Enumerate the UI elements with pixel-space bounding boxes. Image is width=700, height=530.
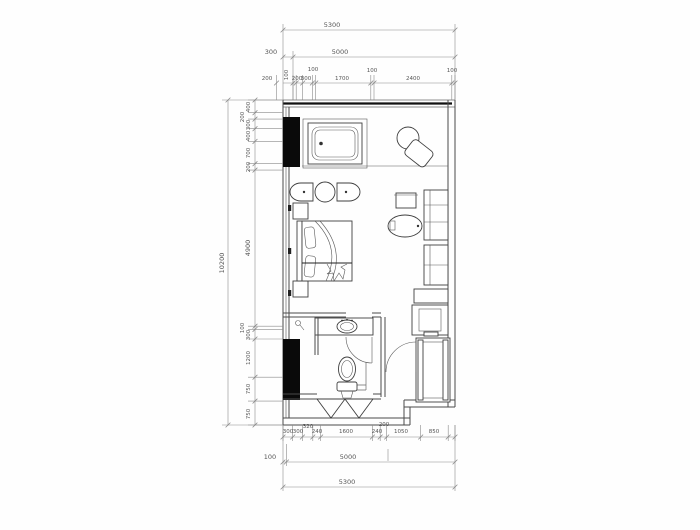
svg-text:240: 240 <box>312 429 323 435</box>
svg-text:300: 300 <box>246 329 252 340</box>
basin <box>337 320 357 333</box>
column-lower <box>283 339 300 400</box>
svg-text:300: 300 <box>301 76 312 82</box>
nightstand-bottom <box>293 281 308 297</box>
bathtub <box>303 119 367 168</box>
svg-text:200: 200 <box>379 422 390 428</box>
svg-text:4900: 4900 <box>244 240 252 257</box>
minibar <box>412 305 448 335</box>
svg-text:1600: 1600 <box>339 429 353 435</box>
svg-text:100: 100 <box>447 68 458 74</box>
dim-top-outer: 200 <box>262 76 273 82</box>
svg-text:400: 400 <box>246 101 252 112</box>
headboard <box>297 221 302 281</box>
dim-bottom-offset: 100 <box>264 453 276 461</box>
dim-left-overall: 10200 <box>218 253 226 274</box>
svg-text:100: 100 <box>284 69 290 80</box>
svg-text:1200: 1200 <box>246 351 252 365</box>
nightstand-top <box>293 203 308 219</box>
entry-door-arc <box>386 342 416 372</box>
floor-plan-page: 5300 300 5000 200 100 200 300 100 1700 1… <box>0 0 700 530</box>
svg-text:700: 700 <box>246 147 252 158</box>
toilet <box>337 357 357 398</box>
svg-text:1700: 1700 <box>335 76 349 82</box>
bathroom <box>283 313 416 418</box>
double-door-left <box>317 399 345 418</box>
svg-text:400: 400 <box>246 130 252 141</box>
shower-head <box>296 321 301 326</box>
svg-text:1050: 1050 <box>394 429 408 435</box>
svg-text:100: 100 <box>367 68 378 74</box>
svg-text:2400: 2400 <box>406 76 420 82</box>
dim-top-overall: 5300 <box>324 21 341 29</box>
dim-top-inner: 5000 <box>332 48 349 56</box>
vanity-stool <box>315 182 335 202</box>
lounge-table-and-chair <box>397 127 435 168</box>
column-upper <box>283 117 300 167</box>
svg-text:300: 300 <box>246 119 252 130</box>
svg-text:240: 240 <box>372 429 383 435</box>
svg-text:100: 100 <box>308 67 319 73</box>
floor-plan-drawing: 5300 300 5000 200 100 200 300 100 1700 1… <box>0 0 700 530</box>
dim-bottom-inner: 5000 <box>340 453 357 461</box>
dim-top-offset: 300 <box>265 48 277 56</box>
vanity-double-sinks <box>290 182 360 202</box>
svg-text:750: 750 <box>246 408 252 419</box>
double-door-right <box>345 399 373 418</box>
desk-area <box>388 193 422 237</box>
tv-unit <box>414 289 448 303</box>
svg-text:200: 200 <box>246 161 252 172</box>
svg-text:750: 750 <box>246 383 252 394</box>
dim-bottom-overall: 5300 <box>339 478 356 486</box>
bed-group <box>293 203 352 297</box>
svg-text:850: 850 <box>429 429 440 435</box>
